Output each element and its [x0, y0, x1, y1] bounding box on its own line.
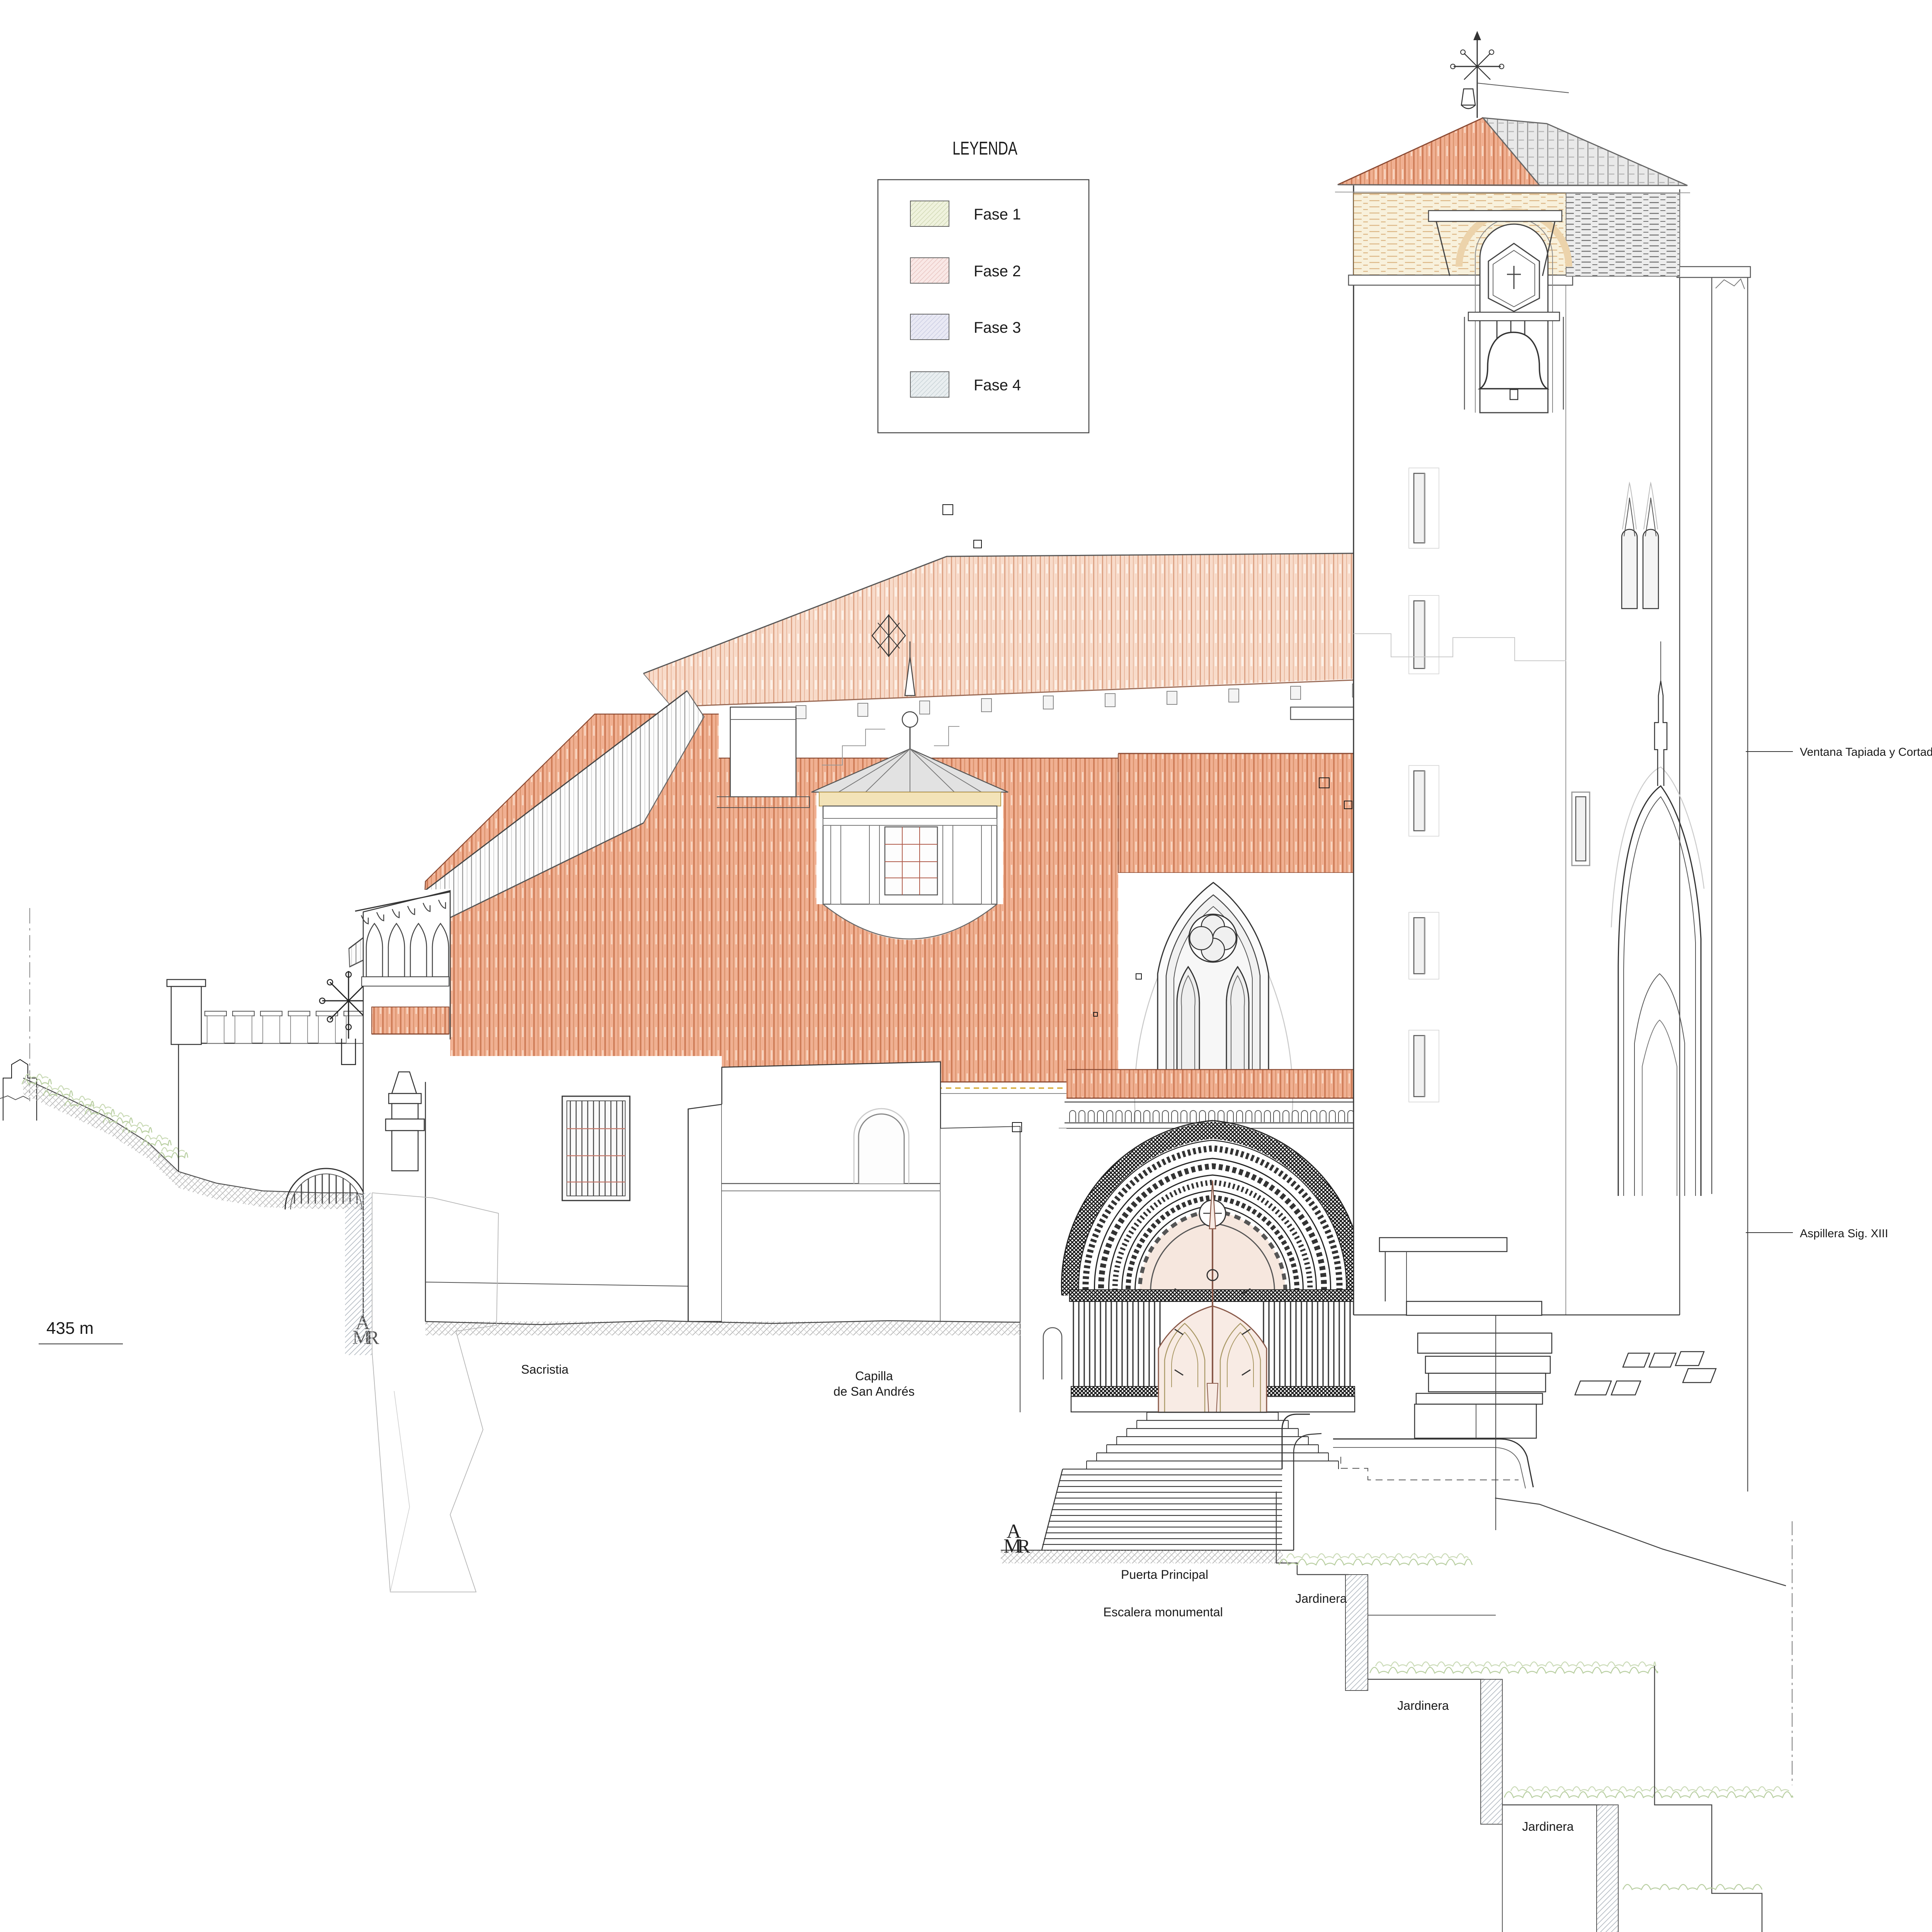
svg-text:Fase 2: Fase 2 — [974, 263, 1021, 280]
svg-text:R: R — [1017, 1535, 1031, 1557]
svg-text:de San Andrés: de San Andrés — [833, 1384, 915, 1398]
svg-text:Fase 1: Fase 1 — [974, 206, 1021, 223]
svg-text:Jardinera: Jardinera — [1397, 1699, 1449, 1713]
svg-text:Jardinera: Jardinera — [1295, 1592, 1347, 1605]
svg-text:LEYENDA: LEYENDA — [952, 138, 1017, 159]
svg-text:Fase 4: Fase 4 — [974, 377, 1021, 394]
svg-text:435 m: 435 m — [46, 1319, 94, 1338]
svg-text:Puerta Principal: Puerta Principal — [1121, 1568, 1208, 1582]
svg-text:Ventana Tapiada y Cortada Sig.: Ventana Tapiada y Cortada Sig. XVIII — [1800, 746, 1932, 759]
svg-text:Sacristia: Sacristia — [521, 1362, 569, 1376]
svg-text:Fase 3: Fase 3 — [974, 319, 1021, 336]
svg-text:Escalera monumental: Escalera monumental — [1103, 1605, 1223, 1619]
svg-text:Aspillera Sig. XIII: Aspillera Sig. XIII — [1800, 1227, 1888, 1240]
svg-text:Capilla: Capilla — [855, 1369, 893, 1383]
svg-text:Jardinera: Jardinera — [1522, 1820, 1574, 1833]
